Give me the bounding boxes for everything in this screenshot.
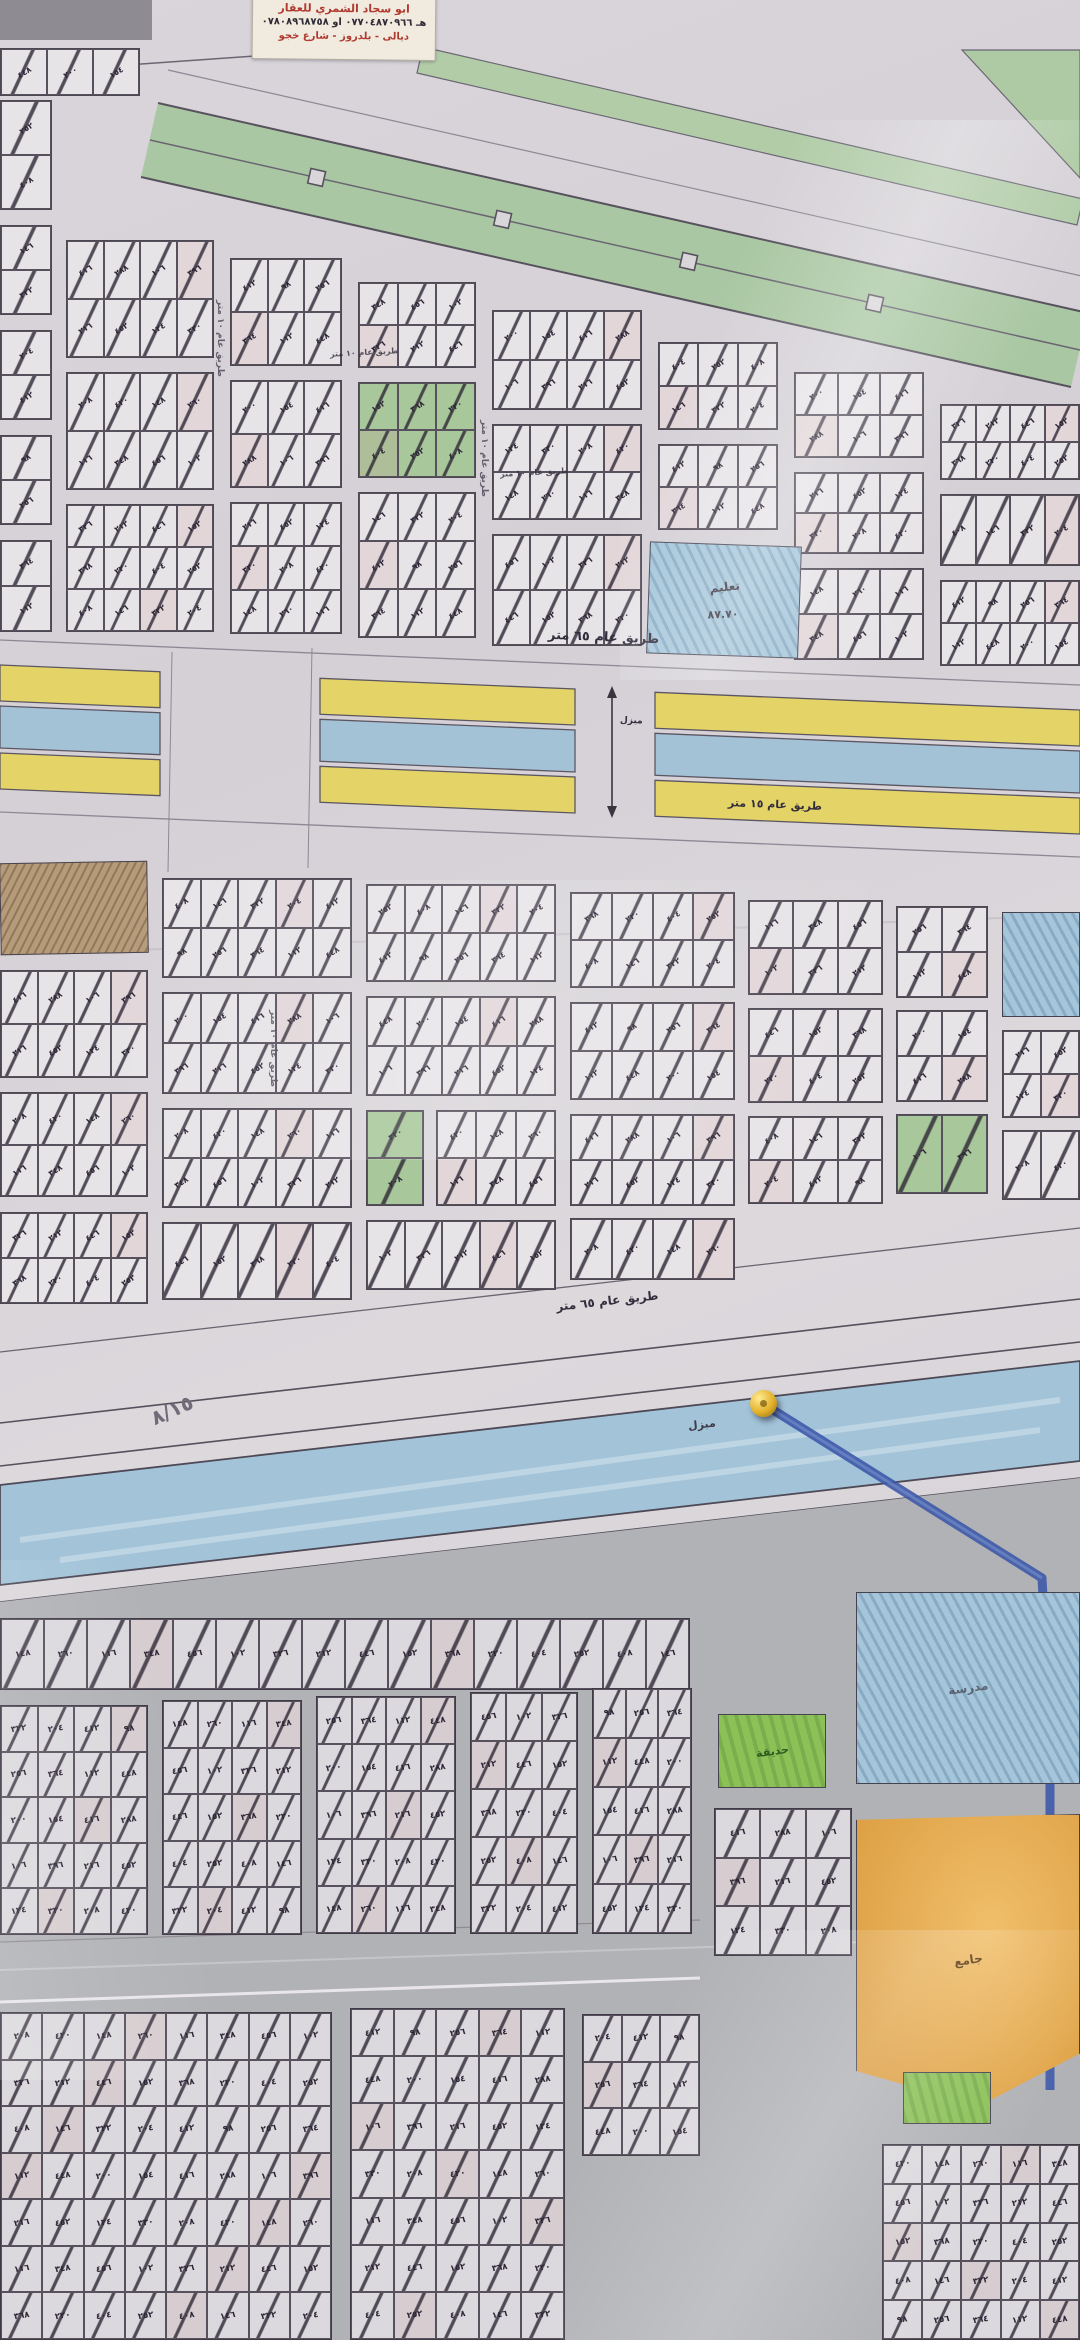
plot-cell: ٤٤٨ [421, 1697, 456, 1744]
plot-cell: ٢١٦ [74, 1843, 111, 1889]
plot-cell: ٣٦٨ [232, 1794, 267, 1841]
plot-number: ١٠٦ [601, 1854, 618, 1866]
plot-cell: ٢١٦ [1003, 1031, 1041, 1074]
plot-cell: ١٠٢ [880, 614, 923, 659]
plot-number: ٤٤٦ [1051, 2197, 1068, 2209]
plot-number: ٢٠٨ [11, 1111, 28, 1126]
plot-cell: ٣٢٢ [653, 940, 694, 987]
plot-cell: ٤٠٨ [749, 1117, 793, 1160]
plot-cell: ٢٠٨ [163, 1109, 201, 1158]
plot-number: ٤١٦ [84, 1814, 101, 1826]
plot-number: ٢٠٠ [173, 1010, 190, 1025]
plot-number: ٢١٢ [47, 1228, 64, 1243]
plot-number: ١١٦ [1012, 2158, 1029, 2170]
plot-number: ٣٢٢ [490, 901, 507, 916]
plot-cell: ٤٠٤ [163, 1841, 198, 1888]
plot-number: ٣٢٢ [96, 2123, 113, 2135]
plot-cell: ٤٢٠ [111, 1888, 148, 1934]
plot-number: ١٠٦ [324, 1010, 341, 1025]
plot-cell: ٢١٦ [571, 1160, 612, 1205]
plot-number: ٣٩٦ [314, 453, 331, 468]
plot-number: ٤٢٠ [219, 2216, 236, 2228]
plot-number: ٩٨ [175, 946, 188, 959]
plot-cell: ٣٢٦ [567, 535, 604, 590]
plot-cell: ٤١٦ [1, 971, 38, 1024]
plot-number: ٩٨ [626, 1021, 639, 1034]
plot-cell: ٤١٢ [622, 2015, 661, 2062]
plot-number: ٤٥٢ [47, 1043, 64, 1058]
plot-number: ٤٤٨ [120, 1768, 137, 1780]
plot-cell: ١١٦ [67, 431, 104, 489]
plot-cell: ٢٢٠ [521, 2245, 564, 2292]
plot-number: ٢٨٨ [614, 328, 631, 343]
zone-education-label: تعليم [709, 578, 741, 595]
plot-cell: ٣٢٢ [698, 386, 737, 429]
plot-cell: ٢٠٨ [67, 373, 104, 431]
plot-cell: ٣٣٠ [367, 1111, 423, 1158]
plot-cell: ١٠٢ [177, 431, 214, 489]
plot-cell: ٣٤٨ [42, 2246, 83, 2293]
plot-number: ١٥٤ [277, 400, 294, 415]
plot-number: ٢٥٢ [17, 120, 34, 135]
plot-number: ١٢٤ [893, 485, 910, 500]
plot-cell: ٣٤٨ [104, 431, 141, 489]
plot-number: ٢٥٦ [11, 1768, 28, 1780]
plot-cell: ٢٠٤ [738, 386, 777, 429]
plot-number: ٤١٢ [950, 594, 967, 609]
plot-number: ٣٦٤ [633, 2079, 650, 2091]
plot-number: ٢٢٠ [54, 2310, 71, 2322]
plot-number: ٣٢٦ [807, 963, 824, 978]
plot-cell: ١٠٦ [367, 1046, 405, 1095]
plot-cell: ١١٦ [232, 1701, 267, 1748]
plot-cell: ٣٣٠ [530, 425, 567, 472]
plot-cell: ١٤٨ [231, 590, 268, 633]
plot-cell: ٣٩٦ [290, 2153, 331, 2200]
plot-number: ٣٢٦ [241, 1765, 258, 1777]
plot-cell: ٢٠٨ [74, 1888, 111, 1934]
plot-number: ٤٢٠ [211, 1126, 228, 1141]
plot-cell: ٣٤٨ [207, 2013, 248, 2060]
plot-number: ٤١٦ [490, 1014, 507, 1029]
plot-cell: ٤٤٨ [1, 49, 47, 95]
plot-cell: ٤٠٤ [249, 2060, 290, 2107]
plot-cell: ٤٥٢ [838, 473, 881, 513]
plot-block: ٣٢٦٢١٢٤٤٦١٥٢٣٦٨٢٢٠٤٠٤٢٥٢ [940, 404, 1080, 480]
plot-cell: ٤٥٢ [111, 1843, 148, 1889]
plot-cell: ٤٥٦ [74, 1145, 111, 1197]
plot-cell: ١٠٢ [367, 1221, 405, 1289]
plot-cell: ٢١٦ [442, 1046, 480, 1095]
plot-number: ٣٤٨ [487, 1174, 504, 1189]
plot-number: ٢٠٤ [47, 1723, 64, 1735]
plot-number: ٣٣٠ [120, 1043, 137, 1058]
plot-block: ١٤٨٢٦٠١١٦٣٤٨٤٥٦١٠٢ [794, 568, 924, 660]
plot-cell: ٩٨ [405, 933, 443, 981]
plot-number: ٤٤٦ [84, 1228, 101, 1243]
plot-cell: ٣٢٦ [1, 2060, 42, 2107]
plot-number: ١٠٢ [248, 1175, 265, 1190]
plot-cell: ٢١٢ [267, 1748, 302, 1795]
plot-cell: ٣٦٨ [67, 547, 104, 589]
plot-number: ١١٢ [1012, 2313, 1029, 2325]
plot-number: ١٠٢ [120, 1163, 137, 1178]
plot-cell: ١٠٢ [290, 2013, 331, 2060]
plot-number: ٢٥٢ [406, 2309, 423, 2321]
plot-cell: ٢٦٠ [290, 2199, 331, 2246]
plot-number: ٤١٢ [241, 1905, 258, 1917]
plot-cell: ٢٥٦ [653, 1003, 694, 1051]
plot-number: ٣٤٨ [113, 452, 130, 467]
plot-cell: ٤٤٦ [249, 2246, 290, 2293]
plot-number: ٣٣٠ [324, 1060, 341, 1075]
zone-school: مدرسة [856, 1592, 1080, 1784]
plot-number: ١٤٨ [261, 2216, 278, 2228]
plot-block: ٩٨٢٥٦ [0, 435, 52, 525]
plot-cell: ٣٦٤ [942, 907, 987, 952]
plot-cell: ١٥٤ [436, 2056, 479, 2103]
plot-number: ٣٣٠ [775, 1924, 792, 1936]
plot-number: ٩٨ [19, 452, 32, 465]
plot-cell: ٤٠٨ [603, 1619, 646, 1689]
plot-cell: ٢٠٠ [405, 997, 443, 1046]
plot-number: ٢٠٠ [406, 2074, 423, 2086]
plot-cell: ٤٠٤ [653, 893, 694, 940]
plot-number: ٢١٦ [452, 1063, 469, 1078]
plot-cell: ٤٤٦ [345, 1619, 388, 1689]
plot-block: ٢٠٠١٥٤٤١٦٢٨٨١٠٦٣٩٦٢١٦٤٥٢ [492, 310, 642, 410]
plot-number: ٤٥٦ [480, 1711, 497, 1723]
plot-cell: ٤٥٦ [436, 2198, 479, 2245]
plot-number: ٣٢٢ [11, 1723, 28, 1735]
plot-block: ٤١٦٢٨٨١٠٦٣٩٦٢١٦٤٥٢١٢٤٣٣٠٢٠٨ [714, 1808, 852, 1956]
plot-number: ٢٦٠ [540, 488, 557, 503]
plot-block: ٤١٢٩٨٢٥٦٣٦٤١١٢٤٤٨٢٠٠١٥٤٤١٦٢٨٨١٠٦٣٩٦٢١٦٤٥… [350, 2008, 565, 2340]
plot-number: ٢٢٠ [624, 909, 641, 924]
plot-number: ٣٩٦ [120, 990, 137, 1005]
plot-cell: ٢٨٨ [111, 1797, 148, 1843]
plot-number: ٣٦٤ [1053, 594, 1070, 609]
plot-cell: ٢٠٨ [367, 1158, 423, 1205]
plot-cell: ٤٥٦ [140, 431, 177, 489]
plot-number: ١٠٦ [820, 1827, 837, 1839]
plot-number: ٤٤٦ [490, 1247, 507, 1262]
plot-block: ٢٠٨٤٢٠١٤٨٢٦٠١١٦٣٤٨٤٥٦١٠٢ [66, 372, 214, 490]
plot-cell: ٢٠٨ [806, 1906, 851, 1955]
plot-cell: ٢١٦ [436, 2103, 479, 2150]
plot-cell: ٤٢٠ [421, 1839, 456, 1886]
plot-cell: ٣٤٨ [359, 283, 398, 325]
plot-cell: ٢٠٠ [47, 49, 93, 95]
plot-number: ٣٤٨ [219, 2030, 236, 2042]
plot-cell: ٤٠٤ [351, 2292, 394, 2339]
plot-cell: ٤٢٠ [436, 2150, 479, 2197]
plot-number: ١١٢ [277, 331, 294, 346]
plot-cell: ١٥٢ [436, 2245, 479, 2292]
plot-cell: ٤١٢ [1040, 2261, 1079, 2300]
plot-number: ٢٢٠ [275, 1811, 292, 1823]
plot-number: ٣٩٦ [893, 428, 910, 443]
plot-number: ٤٠٤ [370, 446, 387, 461]
plot-block: ٩٨٢٥٦٣٦٤١١٢٤٤٨٢٠٠١٥٤٤١٦٢٨٨١٠٦٣٩٦٢١٦٤٥٢١٢… [592, 1688, 692, 1934]
plot-block: ٢٠٠١٥٤٤١٦٢٨٨ [896, 1010, 988, 1102]
plot-cell: ٤٤٦ [480, 1221, 518, 1289]
plot-number: ٢٦٠ [57, 1648, 74, 1660]
plot-number: ١٤٦ [624, 956, 641, 971]
plot-cell: ٢٠٤ [198, 1887, 233, 1934]
plot-cell: ٢١٢ [104, 505, 141, 547]
plot-number: ١٤٨ [487, 1127, 504, 1142]
plot-cell: ٣٦٤ [693, 1003, 734, 1051]
plot-cell: ١٥٢ [125, 2060, 166, 2107]
plot-number: ٢٢٠ [219, 2077, 236, 2089]
plot-number: ١٥٤ [705, 1067, 722, 1082]
plot-cell: ١٤٦ [646, 1619, 689, 1689]
plot-cell: ٣٤٨ [476, 1158, 515, 1205]
pushpin-center [760, 1400, 767, 1407]
plot-number: ٤١٢ [670, 458, 687, 473]
plot-cell: ١٥٤ [38, 1797, 75, 1843]
plot-number: ٤٤٨ [377, 1014, 394, 1029]
plot-block: ٤٤٨٢٠٠١٥٤٤١٦٢٨٨١٠٦٣٩٦٢١٦٤٥٢١٢٤ [366, 996, 556, 1096]
plot-number: ٤٥٦ [96, 2263, 113, 2275]
plot-cell: ٤١٢ [231, 259, 268, 312]
plot-cell: ٢١٦ [231, 503, 268, 546]
plot-number: ٤٤٨ [624, 1067, 641, 1082]
plot-cell: ٢٥٢ [1040, 2223, 1079, 2262]
plot-cell: ٢٥٦ [583, 2062, 622, 2109]
plot-cell: ٤٠٨ [738, 343, 777, 386]
plot-block: ٣٢٦٢١٢٤٤٦١٥٢٣٦٨٢٢٠٤٠٤٢٥٢ [0, 1212, 148, 1304]
plot-number: ١١٦ [241, 1718, 258, 1730]
plot-block: ٤٢٠١٤٨٢٦٠١١٦٣٤٨٤٥٦١٠٢٣٢٦٢١٢٤٤٦١٥٢٣٦٨٢٢٠٤… [882, 2144, 1080, 2340]
plot-number: ٢٨٨ [286, 1010, 303, 1025]
plot-number: ٢٥٦ [911, 922, 928, 937]
plot-cell: ٢٠٨ [268, 546, 305, 589]
plot-number: ٢٢٠ [286, 1253, 303, 1268]
plot-cell: ٤٤٦ [163, 1794, 198, 1841]
plot-cell: ٣٩٦ [693, 1115, 734, 1160]
plot-number: ٤٢٠ [449, 2168, 466, 2180]
plot-cell: ١٢٤ [715, 1906, 760, 1955]
plot-number: ١٠٢ [377, 1247, 394, 1262]
plot-cell: ٣٦٤ [659, 487, 698, 529]
plot-cell: ١١٢ [517, 933, 555, 981]
plot-number: ١٠٢ [137, 2263, 154, 2275]
plot-number: ١٢٤ [664, 1175, 681, 1190]
plot-block: ٣٦٨٢٢٠٤٠٤٢٥٢٤٠٨١٤٦٣٢٢٢٠٤ [570, 892, 735, 988]
plot-number: ٣٤٨ [406, 2215, 423, 2227]
plot-number: ٤٠٨ [449, 2309, 466, 2321]
plot-cell: ٣٦٤ [38, 1752, 75, 1798]
plot-cell: ٣٣٠ [1041, 1074, 1079, 1117]
plot-number: ٣٢٢ [17, 284, 34, 299]
plot-cell: ١٠٢ [216, 1619, 259, 1689]
plot-cell: ٤٢٠ [1041, 1131, 1079, 1199]
plot-cell: ٣٣٠ [351, 2150, 394, 2197]
plot-cell: ٣٣٠ [352, 1839, 387, 1886]
plot-number: ٣٤٨ [54, 2263, 71, 2275]
plot-number: ٢٠٠ [808, 386, 825, 401]
plot-number: ٤١٢ [370, 557, 387, 572]
plot-block: ٢١٦٤٥٢١٢٤٣٣٠ [1002, 1030, 1080, 1118]
plot-number: ٣٤٨ [614, 488, 631, 503]
lane-label-10m-b: طريق عام ١٠ متر [479, 420, 489, 497]
plot-number: ٤٠٨ [173, 896, 190, 911]
plot-number: ٤٢٠ [624, 1241, 641, 1256]
plot-block: ٢٠٤٤١٢٩٨٢٥٦٣٦٤١١٢٤٤٨٢٠٠١٥٤ [582, 2014, 700, 2156]
plot-number: ١٥٤ [850, 386, 867, 401]
plot-number: ٤٤٨ [314, 331, 331, 346]
plot-block: ٤٠٨١٤٦٣٢٢٢٠٤٤١٢٩٨ [748, 1116, 883, 1204]
plot-cell: ٢١٦ [760, 1858, 805, 1907]
plot-cell: ١١٢ [276, 928, 314, 977]
plot-cell: ١١٦ [437, 1158, 476, 1205]
plot-number: ٢٥٢ [1053, 453, 1070, 468]
plot-number: ٢٨٨ [775, 1827, 792, 1839]
plot-cell: ٢١٦ [795, 473, 838, 513]
plot-number: ٣٦٤ [492, 2026, 509, 2038]
plot-cell: ٢٠٨ [1, 2013, 42, 2060]
plot-cell: ١٥٤ [201, 993, 239, 1043]
plot-number: ٢٨٨ [429, 1762, 446, 1774]
plot-number: ٢٠٠ [503, 328, 520, 343]
plot-cell: ١٥٤ [352, 1744, 387, 1791]
plot-number: ٤٤٨ [429, 1714, 446, 1726]
plot-cell: ٣٤٨ [394, 2198, 437, 2245]
plot-cell: ٤١٢ [74, 1706, 111, 1752]
plot-cell: ٩٨ [976, 581, 1011, 623]
plot-cell: ١٢٤ [304, 503, 341, 546]
plot-number: ١٠٢ [933, 2197, 950, 2209]
plot-cell: ٤٠٤ [542, 1789, 577, 1837]
plot-number: ٣٩٦ [956, 1146, 973, 1161]
plot-block: ٣٣٠٢٠٨ [366, 1110, 424, 1206]
plot-cell: ٢١٦ [386, 1791, 421, 1838]
plot-cell: ٢١٢ [42, 2060, 83, 2107]
plot-block: ٢٥٢٤٠٨ [0, 100, 52, 210]
plot-cell: ٣٢٦ [941, 405, 976, 442]
plot-number: ٤٢٠ [894, 2158, 911, 2170]
plot-cell: ٤٢٠ [604, 425, 641, 472]
plot-cell: ٤٥٢ [104, 299, 141, 357]
plot-number: ٢٥٦ [449, 2026, 466, 2038]
plot-number: ٢٦٠ [534, 2168, 551, 2180]
plot-cell: ١١٢ [698, 487, 737, 529]
plot-cell: ٢٥٢ [398, 430, 437, 477]
plot-cell: ٢٠٤ [1045, 495, 1080, 565]
plot-block: ٤١٢٩٨٢٥٦٣٦٤١١٢٤٤٨ [658, 444, 778, 530]
plot-cell: ٢٥٦ [626, 1689, 659, 1738]
plot-number: ١١٦ [364, 2215, 381, 2227]
plot-number: ٣٦٨ [444, 1648, 461, 1660]
plot-number: ٤٠٤ [96, 2310, 113, 2322]
plot-number: ٣٢٦ [551, 1711, 568, 1723]
plot-number: ٤٥٢ [1051, 1045, 1068, 1060]
plot-cell: ٣٤٨ [1040, 2145, 1079, 2184]
plot-number: ٣٦٨ [13, 2310, 30, 2322]
zone-hatched-brown [0, 861, 149, 956]
plot-cell: ٣٢٦ [67, 505, 104, 547]
plot-block: ٢١٦٤٥٢١٢٤٣٣٠٢٠٨٤٢٠١٤٨٢٦٠١١٦ [230, 502, 342, 634]
plot-number: ٢٠٨ [583, 1241, 600, 1256]
plot-cell: ٩٨ [838, 1160, 882, 1203]
plot-number: ١٢٤ [528, 1063, 545, 1078]
plot-cell: ٢٥٦ [317, 1697, 352, 1744]
plot-number: ٤٠٤ [807, 1071, 824, 1086]
plot-number: ١٤٨ [492, 2168, 509, 2180]
plot-number: ٤٠٤ [324, 1253, 341, 1268]
plot-cell: ٢٦٠ [961, 2145, 1000, 2184]
plot-cell: ٤٥٢ [612, 1160, 653, 1205]
plot-number: ٤١٦ [178, 2170, 195, 2182]
plot-cell: ٣٩٦ [405, 1046, 443, 1095]
plot-cell: ٤٠٤ [1001, 2223, 1040, 2262]
plot-cell: ٤١٢ [367, 933, 405, 981]
plot-cell: ١٠٢ [436, 283, 475, 325]
plot-number: ٢٥٢ [302, 2077, 319, 2089]
plot-number: ٣٢٦ [178, 2263, 195, 2275]
plot-number: ١١٢ [528, 949, 545, 964]
plot-number: ٢٠٨ [84, 1905, 101, 1917]
plot-number: ٤١٢ [583, 1019, 600, 1034]
plot-cell: ١٢٤ [880, 473, 923, 513]
plot-number: ٢٠٤ [1053, 522, 1070, 537]
plot-number: ٢٠٠ [911, 1026, 928, 1041]
plot-number: ١١٦ [893, 584, 910, 599]
zone-green-small [903, 2072, 991, 2124]
plot-number: ٣٦٨ [77, 560, 94, 575]
plot-number: ٤٠٨ [415, 901, 432, 916]
plot-cell: ٣٤٨ [267, 1701, 302, 1748]
plot-number: ٢٠٠ [326, 1762, 343, 1774]
plot-block: ٢٥٦٣٦٤١١٢٤٤٨ [896, 906, 988, 998]
plot-number: ٣٤٨ [429, 1903, 446, 1915]
plot-number: ٤٢٠ [54, 2030, 71, 2042]
plot-cell: ١٠٦ [74, 971, 111, 1024]
zone-blue-small [1002, 912, 1080, 1017]
plot-cell: ١٢٤ [521, 2103, 564, 2150]
plot-number: ٢١٦ [11, 1043, 28, 1058]
plot-number: ٣٩٦ [406, 2121, 423, 2133]
plot-cell: ٢١٦ [67, 299, 104, 357]
plot-number: ٢١٦ [84, 1859, 101, 1871]
plot-block: ٢١٦٤٥٢١٢٤٣٣٠٢٠٨٤٢٠ [794, 472, 924, 554]
plot-number: ٤١٢ [17, 389, 34, 404]
plot-cell: ١٥٢ [359, 383, 398, 430]
plot-number: ٣٩٦ [173, 1060, 190, 1075]
plot-number: ٣٤٨ [808, 629, 825, 644]
plot-number: ٣٤٨ [173, 1175, 190, 1190]
plot-number: ٤٢٠ [314, 560, 331, 575]
plot-cell: ٢٥٢ [198, 1841, 233, 1888]
plot-number: ٢١٦ [13, 2216, 30, 2228]
plot-block: ٣٦٤١١٢ [0, 540, 52, 632]
plot-cell: ٤٤٨ [626, 1738, 659, 1787]
plot-cell: ٣٣٠ [760, 1906, 805, 1955]
plot-number: ٢٦٠ [286, 1126, 303, 1141]
plot-number: ١٥٢ [186, 518, 203, 533]
plot-number: ٩٨ [409, 2027, 421, 2039]
plot-cell: ٣٢٢ [471, 1885, 506, 1933]
plot-number: ٢٥٢ [206, 1858, 223, 1870]
plot-cell: ١٠٦ [493, 360, 530, 409]
plot-cell: ٣٢٢ [480, 885, 518, 933]
plot-cell: ٣٤٨ [38, 1145, 75, 1197]
plot-cell: ٩٨ [660, 2015, 699, 2062]
plot-number: ٢٥٦ [594, 2079, 611, 2091]
plot-number: ٢٢٠ [973, 2236, 990, 2248]
